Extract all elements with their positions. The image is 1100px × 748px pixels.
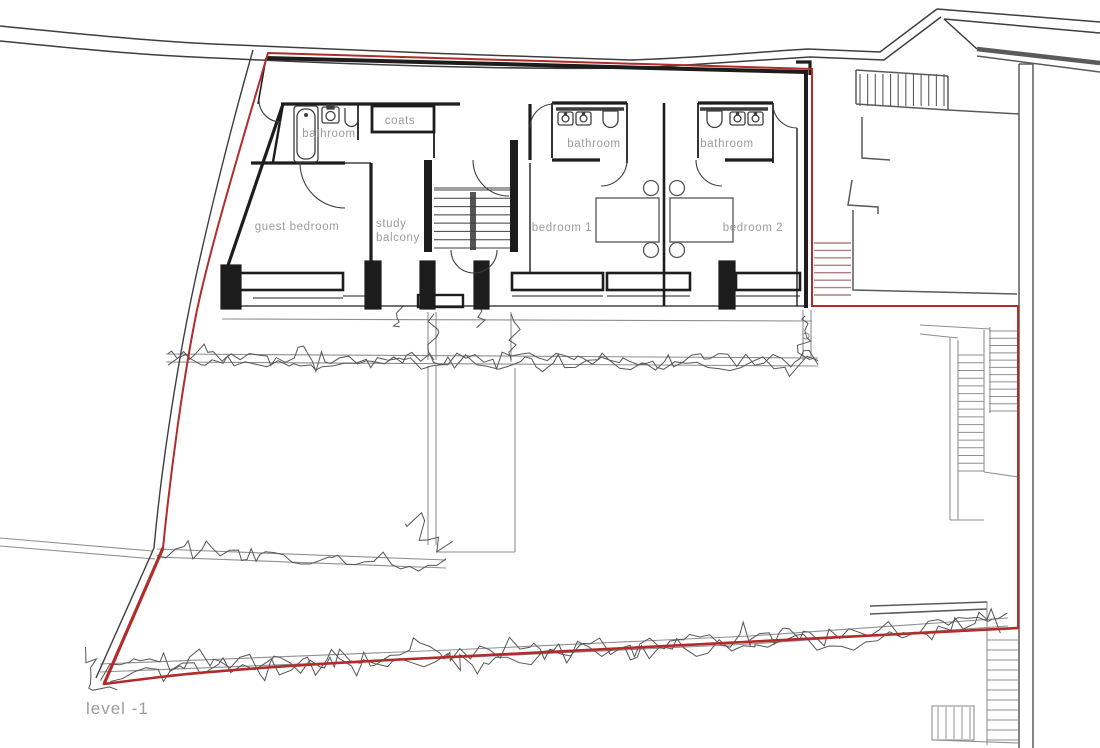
building-walls	[222, 58, 810, 308]
stair-stringer	[470, 192, 476, 250]
door-arc-bedroom2	[773, 104, 797, 128]
neighbor-stair-treads	[860, 74, 944, 106]
sink-icon-b2a	[730, 112, 745, 125]
toilet-icon-b1	[603, 111, 618, 128]
bed-2	[670, 198, 733, 242]
room-label-bathroom2: bathroom	[700, 138, 753, 150]
nightstand	[670, 243, 685, 258]
nightstand	[670, 181, 685, 196]
external-stairs-east	[920, 325, 1018, 520]
stair-flight-a-treads	[989, 331, 1018, 411]
door-arc-bathroom1	[601, 160, 627, 186]
floor-plan-drawing: bathroom coats guest bedroom study balco…	[0, 0, 1100, 748]
door-arc-stairs	[473, 160, 509, 196]
plant-facade-east	[477, 307, 486, 328]
room-label-bathroom-west: bathroom	[302, 128, 355, 140]
toilet-icon-west	[322, 105, 339, 123]
stair-small-treads	[938, 707, 970, 739]
toilet-icon-b2	[707, 111, 722, 128]
nightstand	[644, 243, 659, 258]
sink-icon-west	[345, 108, 358, 127]
room-label-study: study	[376, 218, 407, 230]
plant-facade-west	[393, 306, 403, 327]
room-label-balcony: balcony	[376, 232, 420, 244]
floor-plan-page: bathroom coats guest bedroom study balco…	[0, 0, 1100, 748]
site-outline	[96, 50, 253, 678]
sink-icon-b1b	[576, 112, 591, 125]
neighbor-structures	[848, 49, 1100, 748]
room-label-coats: coats	[385, 115, 416, 127]
door-arcs	[259, 100, 797, 208]
door-arc-bathroom-west	[300, 163, 345, 208]
property-boundary-line	[104, 53, 1018, 684]
room-label-bedroom1: bedroom 1	[532, 222, 592, 234]
bed-1	[596, 198, 659, 242]
road-edge-lines	[0, 9, 1100, 68]
room-label-bedroom2: bedroom 2	[723, 222, 783, 234]
sink-icon-b1a	[558, 112, 573, 125]
room-label-bathroom1: bathroom	[567, 138, 620, 150]
nightstand	[644, 181, 659, 196]
hedges	[86, 306, 1008, 691]
stair-east-of-house-treads	[814, 243, 851, 295]
door-arc-bathroom2	[696, 160, 722, 186]
bush-terrace	[405, 513, 452, 552]
stair-southeast-treads	[987, 640, 1018, 740]
room-labels: bathroom coats guest bedroom study balco…	[86, 115, 783, 718]
door-arc-bedroom1	[530, 104, 554, 128]
room-label-guest-bedroom: guest bedroom	[255, 221, 340, 233]
hedge-strip-stair	[428, 314, 439, 360]
sink-icon-b2b	[748, 112, 763, 125]
main-staircase	[434, 188, 510, 273]
terrace-walls	[0, 310, 1008, 672]
level-label: level -1	[86, 699, 149, 718]
stair-flight-b-treads	[958, 355, 984, 471]
